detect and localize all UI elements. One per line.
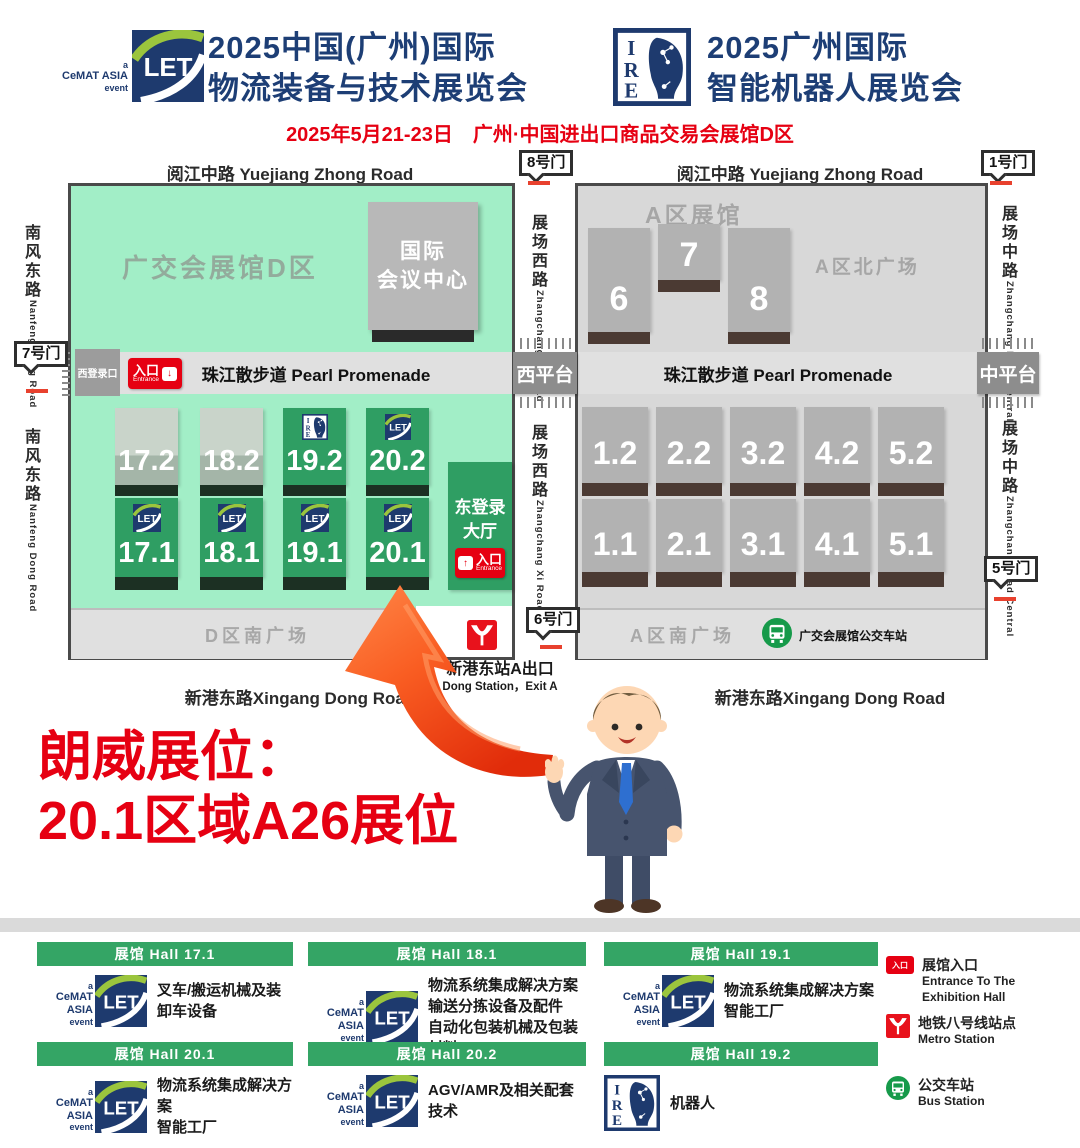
- conference-center-base: [372, 330, 474, 342]
- hall-2-2: 2.2: [656, 407, 722, 483]
- bus-icon: [762, 618, 792, 648]
- hall-bar: [804, 483, 870, 496]
- let-logo: aCeMAT ASIAevent: [37, 975, 147, 1027]
- bus-icon: [886, 1076, 910, 1100]
- gate-1: 1号门: [981, 150, 1035, 176]
- hall-2-1: 2.1: [656, 499, 722, 572]
- gate-8: 8号门: [519, 150, 573, 176]
- let-mini-logo-icon: [301, 504, 329, 532]
- road-nanfeng-upper: 南风东路 Nanfeng Dong Road: [20, 224, 40, 408]
- west-login-port: 西登录口: [75, 349, 120, 396]
- road-yuejiang-left: 阅江中路 Yuejiang Zhong Road: [130, 160, 450, 185]
- hall-bar: [200, 577, 263, 590]
- hall-bar: [115, 577, 178, 590]
- legend-card-hall-19-2: 展馆 Hall 19.2 机器人: [604, 1042, 878, 1131]
- right-exhibition-title: 2025广州国际 智能机器人展览会: [707, 28, 963, 110]
- road-nanfeng-lower: 南风东路 Nanfeng Dong Road: [20, 428, 40, 612]
- let-logo-icon: [366, 1075, 418, 1127]
- let-mini-logo-icon: [384, 504, 412, 532]
- key-entrance: 入口 展馆入口Entrance To The Exhibition Hall: [886, 956, 1076, 1005]
- hall-3-2: 3.2: [730, 407, 796, 483]
- ire-mini-logo-icon: [302, 414, 328, 440]
- entrance-arrow-icon: ↓: [162, 367, 177, 381]
- hall-bar: [656, 483, 722, 496]
- hall-6: 6: [588, 228, 650, 332]
- hall-17-1: 17.1: [115, 498, 178, 577]
- let-mini-logo-icon: [385, 414, 411, 440]
- hall-4-1: 4.1: [804, 499, 870, 572]
- conference-center: 国际 会议中心: [368, 202, 478, 330]
- pearl-promenade-east: 珠江散步道 Pearl Promenade: [578, 352, 978, 394]
- d-south-plaza-label: D区南广场: [205, 622, 310, 648]
- legend-card-hall-17-1: 展馆 Hall 17.1 aCeMAT ASIAevent 叉车/搬运机械及装卸…: [37, 942, 293, 1027]
- legend-card-hall-19-1: 展馆 Hall 19.1 aCeMAT ASIAevent 物流系统集成解决方案…: [604, 942, 878, 1027]
- hall-18-1: 18.1: [200, 498, 263, 577]
- hall-bar: [730, 572, 796, 587]
- let-logo-icon: [95, 1081, 147, 1133]
- mascot-presenter: [545, 668, 710, 918]
- west-platform: 西平台: [513, 352, 577, 394]
- let-logo-icon: [366, 991, 418, 1043]
- hall-bar: [878, 483, 944, 496]
- hall-4-2: 4.2: [804, 407, 870, 483]
- hall-3-1: 3.1: [730, 499, 796, 572]
- hall-bar: [658, 280, 720, 292]
- hall-5-2: 5.2: [878, 407, 944, 483]
- legend-card-hall-20-1: 展馆 Hall 20.1 aCeMAT ASIAevent 物流系统集成解决方案…: [37, 1042, 293, 1138]
- hall-1-2: 1.2: [582, 407, 648, 483]
- booth-announcement: 朗威展位： 20.1区域A26展位: [38, 726, 458, 853]
- let-logo: aCeMAT ASIAevent: [604, 975, 714, 1027]
- hall-bar: [366, 485, 429, 496]
- road-zhangchang-central-lower: 展场中路 Zhangchang Road Central: [997, 420, 1017, 637]
- a-north-plaza-label: A区北广场: [815, 252, 920, 279]
- hall-17-2: 17.2: [115, 408, 178, 485]
- hall-19-2: 19.2: [283, 408, 346, 485]
- hall-18-2: 18.2: [200, 408, 263, 485]
- let-logo-icon: [95, 975, 147, 1027]
- hall-bar: [582, 483, 648, 496]
- central-platform: 中平台: [977, 352, 1039, 394]
- let-logo: aCeMAT ASIAevent: [37, 1081, 147, 1133]
- venue-map-poster: a CeMAT ASIA event 2025中国(广州)国际 物流装备与技术展…: [0, 0, 1080, 1148]
- key-bus: 公交车站Bus Station: [886, 1076, 1076, 1110]
- hall-bar: [200, 485, 263, 496]
- metro-icon: [886, 1014, 910, 1038]
- legend-card-hall-20-2: 展馆 Hall 20.2 aCeMAT ASIAevent AGV/AMR及相关…: [308, 1042, 586, 1127]
- ire-logo-icon: [604, 1075, 660, 1131]
- ire-logo: [604, 1075, 660, 1131]
- crosswalk: [982, 397, 1034, 408]
- hall-bar: [283, 485, 346, 496]
- hall-bar: [582, 572, 648, 587]
- legend-divider: [0, 918, 1080, 932]
- event-date-venue: 2025年5月21-23日 广州·中国进出口商品交易会展馆D区: [0, 118, 1080, 147]
- hall-bar: [656, 572, 722, 587]
- hall-7: 7: [658, 224, 720, 280]
- gate-5-mark: [994, 597, 1016, 601]
- gate-5: 5号门: [984, 556, 1038, 582]
- bus-station-label: 广交会展馆公交车站: [799, 627, 907, 644]
- d-area-label: 广交会展馆D区: [122, 248, 318, 285]
- hall-bar: [878, 572, 944, 587]
- cemat-asia-caption: a CeMAT ASIA event: [58, 60, 128, 93]
- hall-20-2: 20.2: [366, 408, 429, 485]
- hall-bar: [730, 483, 796, 496]
- hall-1-1: 1.1: [582, 499, 648, 572]
- key-metro: 地铁八号线站点Metro Station: [886, 1014, 1076, 1048]
- let-mini-logo-icon: [218, 504, 246, 532]
- road-yuejiang-right: 阅江中路 Yuejiang Zhong Road: [635, 160, 965, 185]
- hall-bar: [804, 572, 870, 587]
- gate-7: 7号门: [14, 341, 68, 367]
- let-mini-logo-icon: [133, 504, 161, 532]
- hall-bar: [588, 332, 650, 344]
- crosswalk: [520, 338, 572, 349]
- gate-7-mark: [26, 389, 48, 393]
- hall-bar: [728, 332, 790, 344]
- let-logo: aCeMAT ASIAevent: [308, 1075, 418, 1127]
- entrance-badge-icon: 入口: [886, 956, 914, 974]
- ire-logo-icon: [613, 28, 691, 106]
- gate-8-mark: [528, 181, 550, 185]
- a-south-plaza-label: A区南广场: [630, 622, 735, 648]
- west-entrance-badge: 入口Entrance ↓: [128, 358, 182, 389]
- let-logo-icon: [132, 30, 204, 102]
- let-logo: aCeMAT ASIAevent: [308, 991, 418, 1043]
- left-exhibition-title: 2025中国(广州)国际 物流装备与技术展览会: [208, 28, 528, 110]
- hall-5-1: 5.1: [878, 499, 944, 572]
- hall-8: 8: [728, 228, 790, 332]
- gate-1-mark: [990, 181, 1012, 185]
- crosswalk: [982, 338, 1034, 349]
- let-logo-icon: [662, 975, 714, 1027]
- crosswalk: [520, 397, 572, 408]
- hall-bar: [115, 485, 178, 496]
